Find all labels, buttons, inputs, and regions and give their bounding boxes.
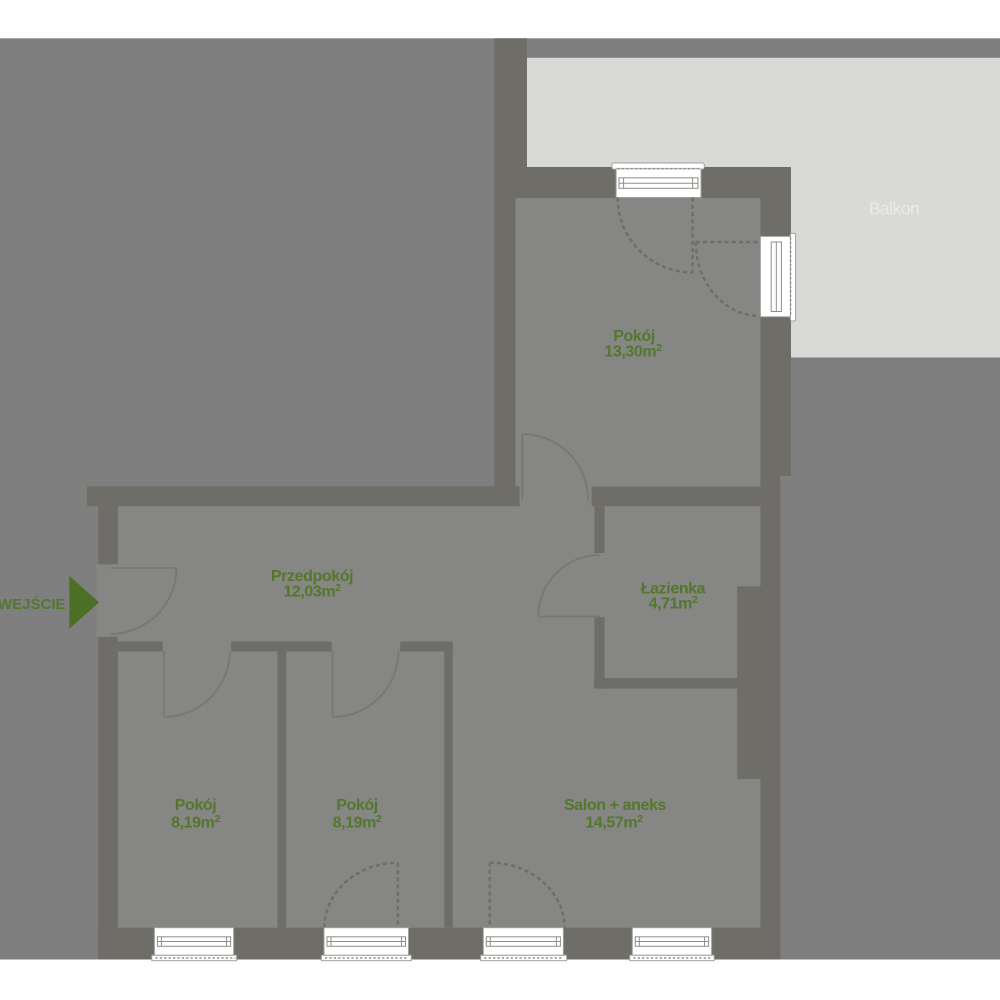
svg-text:4,71m2: 4,71m2 <box>649 594 698 613</box>
svg-text:WEJŚCIE: WEJŚCIE <box>0 595 66 613</box>
svg-text:Balkon: Balkon <box>869 198 920 218</box>
svg-text:Pokój: Pokój <box>336 797 378 814</box>
svg-text:8,19m2: 8,19m2 <box>171 813 220 832</box>
svg-text:12,03m2: 12,03m2 <box>283 582 341 601</box>
svg-text:Salon + aneks: Salon + aneks <box>564 797 666 814</box>
svg-text:Pokój: Pokój <box>175 797 217 814</box>
svg-text:8,19m2: 8,19m2 <box>333 813 382 832</box>
svg-text:14,57m2: 14,57m2 <box>585 813 643 832</box>
svg-text:13,30m2: 13,30m2 <box>604 342 662 361</box>
svg-text:Przedpokój: Przedpokój <box>271 568 353 585</box>
